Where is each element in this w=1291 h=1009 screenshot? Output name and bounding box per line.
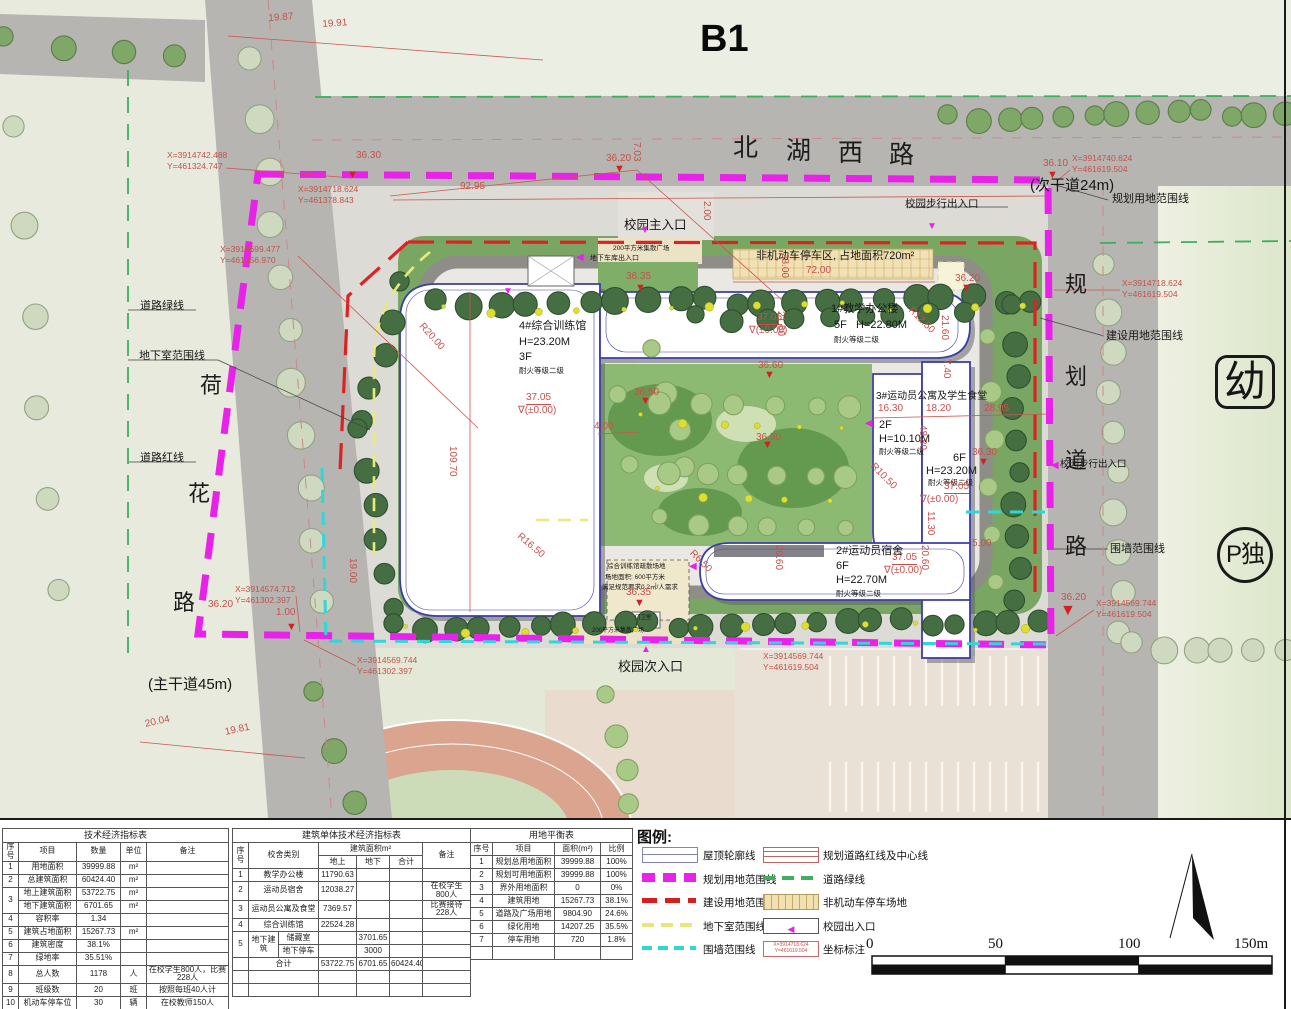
scale-tick-label: 50	[988, 936, 1003, 953]
table-cell	[147, 900, 229, 913]
scale-tick-label: 100	[1118, 936, 1141, 953]
campus-gate-arrow-icon: ▲	[641, 645, 651, 655]
table-cell: 合计	[390, 856, 423, 869]
table-cell: 按照每班40人计	[147, 984, 229, 997]
table-cell: 2	[3, 874, 19, 887]
table-cell	[601, 947, 633, 960]
table-cell: 53722.75	[77, 887, 121, 900]
table-cell: 15267.73	[555, 895, 601, 908]
table-cell: 3	[3, 887, 19, 913]
table-cell: 建筑用地	[493, 895, 555, 908]
table-cell: 建筑占地面积	[19, 926, 77, 939]
table-cell: 4	[3, 913, 19, 926]
table-cell: 用地面积	[19, 861, 77, 874]
table-cell: 100%	[601, 869, 633, 882]
table-cell: 5	[471, 908, 493, 921]
table-cell: 3701.65	[357, 932, 390, 945]
table-cell	[390, 919, 423, 932]
table-cell	[319, 984, 357, 997]
table-cell: 运动员公寓及食堂	[249, 900, 319, 919]
table-cell: 6	[3, 939, 19, 952]
table-cell: 6	[471, 921, 493, 934]
table-title: 用地平衡表	[471, 829, 633, 843]
table-cell: 人	[121, 965, 147, 984]
legend-swatch-green-icon	[763, 876, 817, 880]
table-cell: 备注	[423, 843, 471, 869]
table-cell: 在校学生800人	[423, 882, 471, 901]
table-cell: 数量	[77, 843, 121, 862]
campus-gate-arrow-icon: ◀	[865, 419, 873, 429]
table-cell: 在校学生800人，比赛228人	[147, 965, 229, 984]
table-cell	[390, 900, 423, 919]
table-cell: 面积(m²)	[555, 843, 601, 856]
table-cell	[423, 919, 471, 932]
spot-elevation-icon: ▼	[762, 440, 773, 451]
spot-elevation-icon: ▼	[635, 283, 646, 294]
table-cell: 界外用地面积	[493, 882, 555, 895]
table-cell	[121, 952, 147, 965]
table-cell: 1178	[77, 965, 121, 984]
legend-swatch-roadred-icon	[763, 847, 819, 863]
table-cell: 4	[233, 919, 249, 932]
table-cell: 绿化用地	[493, 921, 555, 934]
legend-label: 道路绿线	[823, 872, 865, 887]
table-cell: 7	[3, 952, 19, 965]
table-cell: 3000	[357, 945, 390, 958]
table-cell: 720	[555, 934, 601, 947]
legend-swatch-park-icon	[763, 894, 819, 910]
table-cell	[357, 919, 390, 932]
table-cell	[357, 869, 390, 882]
table-cell	[555, 947, 601, 960]
table-cell: 运动员宿舍	[249, 882, 319, 901]
table-cell: 地上	[319, 856, 357, 869]
table-cell: 教学办公楼	[249, 869, 319, 882]
legend-swatch-coord-icon: X=3914718.624Y=461619.504	[763, 941, 819, 957]
table-cell	[121, 913, 147, 926]
table-cell: 9	[3, 984, 19, 997]
campus-gate-arrow-icon: ▼	[640, 226, 650, 236]
legend-swatch-cyan-icon	[642, 946, 696, 950]
table-cell: 地下	[357, 856, 390, 869]
table-cell: 3	[471, 882, 493, 895]
spot-elevation-icon: ▼	[286, 622, 297, 633]
table-cell: 总人数	[19, 965, 77, 984]
table-cell: 1	[3, 861, 19, 874]
campus-gate-arrow-icon: ◀	[689, 562, 697, 572]
spot-elevation-icon: ▼	[634, 598, 645, 609]
table-cell	[423, 984, 471, 997]
table-cell	[147, 939, 229, 952]
table-cell: 39999.88	[77, 861, 121, 874]
table-cell: 60424.40	[390, 958, 423, 971]
table-cell: 6701.65	[77, 900, 121, 913]
campus-gate-arrow-icon: ◀	[1051, 461, 1059, 471]
table-cell	[357, 984, 390, 997]
table-cell	[233, 958, 249, 971]
table-cell: 2	[233, 882, 249, 901]
table-cell: 35.51%	[77, 952, 121, 965]
table-cell: m²	[121, 926, 147, 939]
table-title: 建筑单体技术经济指标表	[233, 829, 471, 843]
table-cell: 停车用地	[493, 934, 555, 947]
table-cell	[423, 971, 471, 984]
table-cell: 机动车停车位	[19, 997, 77, 1009]
table-cell: 1	[471, 856, 493, 869]
legend-swatch-roof-icon	[642, 847, 698, 863]
table-cell: 序号	[233, 843, 249, 869]
table-cell: 38.1%	[601, 895, 633, 908]
table-cell	[390, 945, 423, 958]
table-cell: m²	[121, 900, 147, 913]
spot-elevation-icon: ▼	[640, 396, 651, 407]
legend-swatch-ent-icon: ◀	[763, 918, 819, 934]
table-cell: 比赛接待228人	[423, 900, 471, 919]
table-cell: 地下建筑	[249, 932, 279, 958]
table-cell: 合计	[249, 958, 319, 971]
spot-elevation-icon: ▼	[614, 164, 625, 175]
table-cell: 7	[471, 934, 493, 947]
table-cell: 0%	[601, 882, 633, 895]
table-cell: 0	[555, 882, 601, 895]
table-cell	[423, 869, 471, 882]
table-cell: 地下建筑面积	[19, 900, 77, 913]
campus-gate-arrow-icon: ◀	[576, 253, 584, 263]
table-cell	[423, 932, 471, 945]
table-cell: 4	[471, 895, 493, 908]
table-cell: 6701.65	[357, 958, 390, 971]
table-cell	[319, 971, 357, 984]
legend-label: 屋顶轮廓线	[703, 848, 756, 863]
table-cell: 20	[77, 984, 121, 997]
campus-gate-arrow-icon: ▼	[927, 222, 937, 232]
legend-swatch-mag-icon	[642, 873, 696, 882]
legend-label: 非机动车停车场地	[823, 895, 907, 910]
table-cell: 项目	[493, 843, 555, 856]
table-cell: 60424.40	[77, 874, 121, 887]
table-cell	[423, 945, 471, 958]
table-cell	[319, 945, 357, 958]
table-cell: 规划可用地面积	[493, 869, 555, 882]
table-cell	[233, 984, 249, 997]
table-cell: 项目	[19, 843, 77, 862]
table-cell	[249, 984, 319, 997]
spot-elevation-icon: ▼	[1047, 170, 1058, 181]
table-cell: 序号	[3, 843, 19, 862]
table-cell	[423, 958, 471, 971]
table-cell: 序号	[471, 843, 493, 856]
table-cell: 38.1%	[77, 939, 121, 952]
table-cell: 3	[233, 900, 249, 919]
table-cell: 5	[3, 926, 19, 939]
table-cell: 地下停车	[279, 945, 319, 958]
table-cell	[121, 939, 147, 952]
table-cell	[233, 971, 249, 984]
table-cell	[147, 861, 229, 874]
spot-elevation-icon: ▼	[764, 370, 775, 381]
table-cell: 100%	[601, 856, 633, 869]
legend-label: 校园出入口	[823, 919, 876, 934]
table-cell	[147, 887, 229, 900]
table-cell: 储藏室	[279, 932, 319, 945]
table-cell: 14207.25	[555, 921, 601, 934]
table-cell: 综合训练馆	[249, 919, 319, 932]
table-cell: 53722.75	[319, 958, 357, 971]
legend-swatch-yel-icon	[642, 923, 696, 927]
spot-elevation-icon: ▼	[347, 170, 358, 181]
marker-layer: ▼▼▼▼▼▼▼▼▼▼▼▼▼▼◀◀▲◀◀▼	[0, 0, 1291, 818]
table-cell: 班	[121, 984, 147, 997]
table-cell: 比例	[601, 843, 633, 856]
table-cell: 班级数	[19, 984, 77, 997]
data-table-3: 用地平衡表序号项目面积(m²)比例1规划总用地面积39999.88100%2规划…	[470, 828, 632, 960]
table-cell	[390, 932, 423, 945]
table-cell: 校舍类别	[249, 843, 319, 869]
table-cell: 9804.90	[555, 908, 601, 921]
table-cell: m²	[121, 887, 147, 900]
table-cell: 地上建筑面积	[19, 887, 77, 900]
table-cell: 39999.88	[555, 856, 601, 869]
title-block-panel: 技术经济指标表序号项目数量单位备注1用地面积39999.88m²2总建筑面积60…	[0, 818, 1291, 1009]
table-cell	[319, 932, 357, 945]
table-cell	[390, 882, 423, 901]
table-cell: 2	[471, 869, 493, 882]
table-cell	[390, 971, 423, 984]
scale-tick-label: 150m	[1234, 936, 1268, 953]
table-cell: 35.5%	[601, 921, 633, 934]
spot-elevation-icon: ▼	[978, 457, 989, 468]
legend-label: 坐标标注	[823, 942, 865, 957]
table-cell: 22524.28	[319, 919, 357, 932]
table-cell: 单位	[121, 843, 147, 862]
table-cell: m²	[121, 861, 147, 874]
table-cell: 24.6%	[601, 908, 633, 921]
table-cell: 建筑面积m²	[319, 843, 423, 856]
table-cell: 道路及广场用地	[493, 908, 555, 921]
spot-elevation-icon: ▼	[1060, 603, 1076, 619]
sheet-frame-right	[1284, 0, 1286, 1009]
table-cell: 10	[3, 997, 19, 1009]
table-cell: m²	[121, 874, 147, 887]
table-cell: 容积率	[19, 913, 77, 926]
scale-tick-label: 0	[866, 936, 874, 953]
legend-label: 规划道路红线及中心线	[823, 848, 928, 863]
table-cell: 15267.73	[77, 926, 121, 939]
table-cell: 11790.63	[319, 869, 357, 882]
spot-elevation-icon: ▼	[961, 283, 972, 294]
table-cell	[471, 947, 493, 960]
table-title: 技术经济指标表	[3, 829, 229, 843]
table-cell	[147, 874, 229, 887]
table-cell	[357, 882, 390, 901]
data-table-2: 建筑单体技术经济指标表序号校舍类别建筑面积m²备注地上地下合计1教学办公楼117…	[232, 828, 470, 997]
table-cell	[147, 952, 229, 965]
table-cell	[493, 947, 555, 960]
table-cell: 8	[3, 965, 19, 984]
legend-title: 图例:	[637, 826, 672, 847]
table-cell	[357, 900, 390, 919]
table-cell	[147, 926, 229, 939]
legend: 图例: 屋顶轮廓线规划用地范围线建设用地范围线地下室范围线围墙范围线规划道路红线…	[635, 820, 1285, 1009]
table-cell: 在校教师150人	[147, 997, 229, 1009]
table-cell: 12038.27	[319, 882, 357, 901]
legend-swatch-red-icon	[642, 898, 696, 903]
table-cell: 绿地率	[19, 952, 77, 965]
table-cell: 1	[233, 869, 249, 882]
legend-label: 围墙范围线	[703, 942, 756, 957]
plan-sheet: B1北湖西路(次干道24m)规划用地范围线校园步行出入口校园主入口地下车库出入口…	[0, 0, 1291, 1009]
table-cell	[390, 869, 423, 882]
table-cell	[390, 984, 423, 997]
table-cell: 总建筑面积	[19, 874, 77, 887]
table-cell: 建筑密度	[19, 939, 77, 952]
table-cell: 1.34	[77, 913, 121, 926]
table-cell	[147, 913, 229, 926]
campus-gate-arrow-icon: ▼	[503, 287, 513, 297]
data-table-1: 技术经济指标表序号项目数量单位备注1用地面积39999.88m²2总建筑面积60…	[2, 828, 228, 1009]
table-cell: 辆	[121, 997, 147, 1009]
table-cell: 7369.57	[319, 900, 357, 919]
table-cell	[357, 971, 390, 984]
legend-label: 地下室范围线	[703, 919, 766, 934]
table-cell	[249, 971, 319, 984]
table-cell: 1.8%	[601, 934, 633, 947]
table-cell: 39999.88	[555, 869, 601, 882]
table-cell: 备注	[147, 843, 229, 862]
table-cell: 5	[233, 932, 249, 958]
table-cell: 30	[77, 997, 121, 1009]
table-cell: 规划总用地面积	[493, 856, 555, 869]
